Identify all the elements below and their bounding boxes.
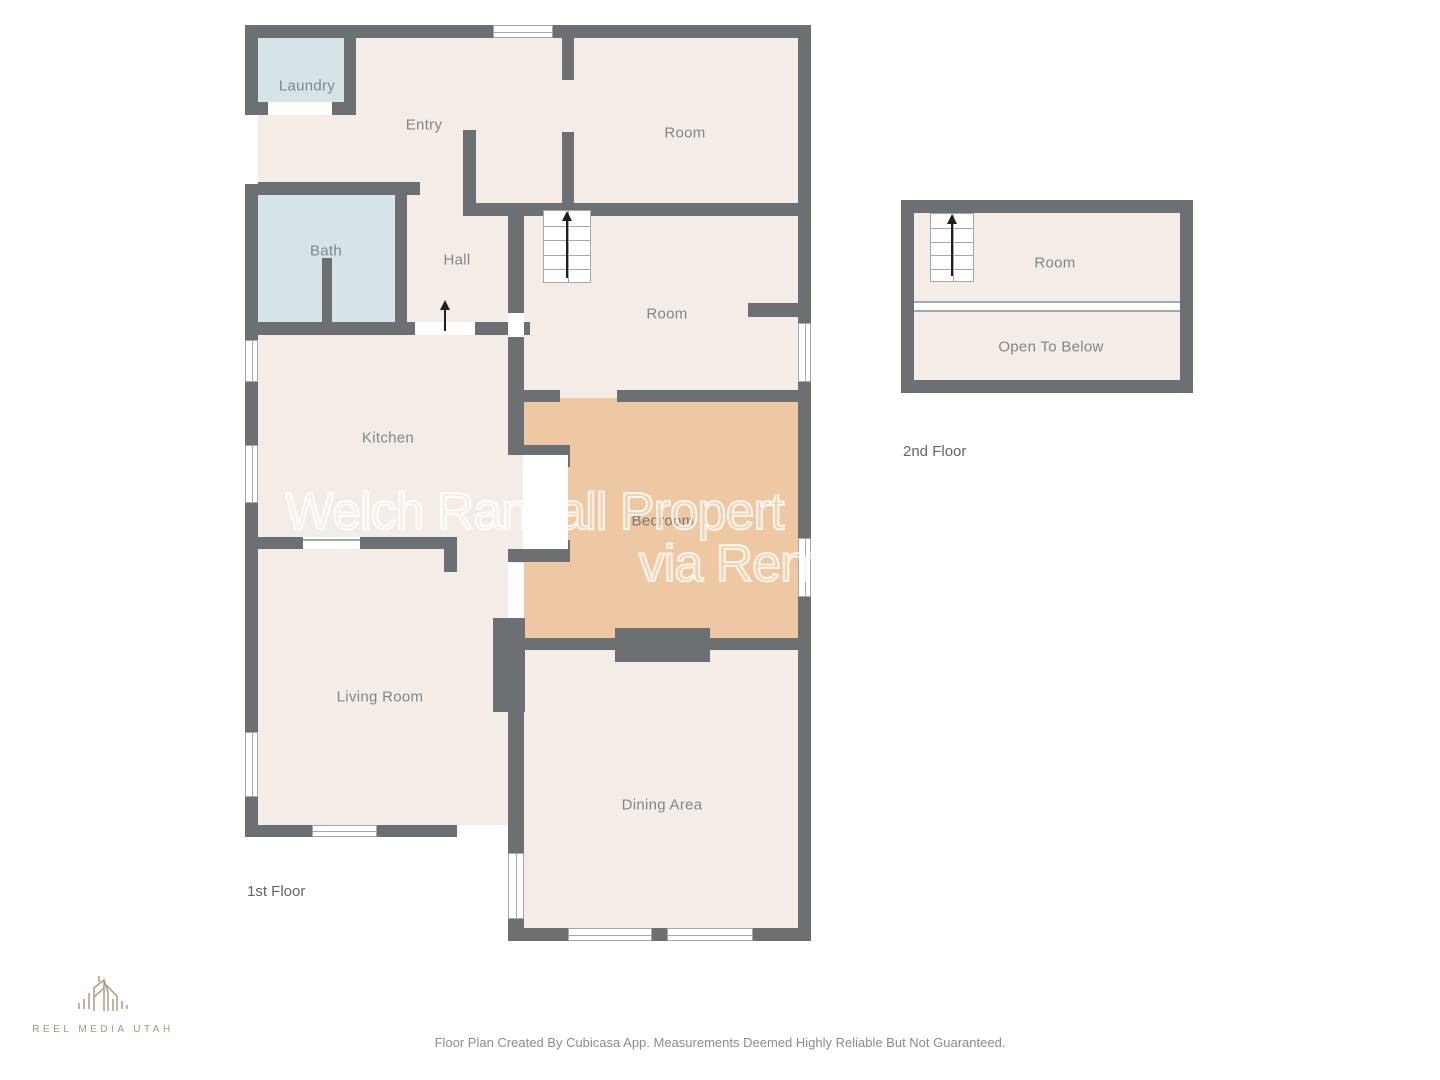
door-opening bbox=[245, 115, 258, 184]
wall-segment bbox=[508, 928, 811, 941]
wall-segment bbox=[508, 712, 524, 853]
wall-segment bbox=[360, 537, 457, 549]
door-opening bbox=[268, 102, 332, 115]
window bbox=[568, 928, 652, 941]
wall-segment bbox=[463, 130, 476, 208]
wall-segment bbox=[508, 390, 560, 402]
window-mullion bbox=[252, 446, 253, 502]
wall-segment bbox=[245, 182, 420, 195]
caption-first-floor: 1st Floor bbox=[247, 883, 305, 900]
wall-segment bbox=[1180, 200, 1193, 393]
wall-segment bbox=[493, 618, 525, 712]
window-mullion bbox=[569, 935, 651, 936]
wall-segment bbox=[615, 628, 710, 662]
window bbox=[312, 825, 377, 837]
wall-segment bbox=[245, 322, 415, 335]
room-label-laundry: Laundry bbox=[279, 78, 335, 95]
wall-segment bbox=[617, 390, 810, 402]
wall-segment bbox=[444, 537, 457, 572]
footer-disclaimer: Floor Plan Created By Cubicasa App. Meas… bbox=[0, 1035, 1440, 1050]
window-mullion bbox=[494, 32, 552, 33]
wall-segment bbox=[901, 200, 914, 393]
logo: REEL MEDIA UTAH bbox=[28, 975, 178, 1035]
wall-segment bbox=[562, 25, 574, 80]
up-arrow-shaft bbox=[444, 309, 446, 331]
wall-segment bbox=[562, 132, 574, 203]
room-label-hall: Hall bbox=[443, 252, 470, 269]
caption-second-floor: 2nd Floor bbox=[903, 443, 966, 460]
window bbox=[245, 732, 258, 797]
door-leaf bbox=[303, 539, 360, 541]
wall-segment bbox=[332, 102, 356, 115]
door-opening bbox=[508, 563, 524, 618]
window bbox=[245, 445, 258, 503]
wall-segment bbox=[508, 216, 524, 313]
room-label-room-2f: Room bbox=[1034, 255, 1075, 272]
room-label-kitchen: Kitchen bbox=[362, 430, 414, 447]
door-opening bbox=[457, 825, 508, 837]
floor-area bbox=[245, 335, 508, 837]
wall-segment bbox=[245, 102, 268, 115]
room-label-living: Living Room bbox=[337, 689, 424, 706]
room-label-bath: Bath bbox=[310, 243, 342, 260]
window-mullion bbox=[252, 341, 253, 381]
wall-segment bbox=[463, 203, 811, 216]
railing bbox=[914, 301, 1180, 312]
window bbox=[245, 340, 258, 382]
logo-text: REEL MEDIA UTAH bbox=[28, 1024, 178, 1035]
window bbox=[493, 25, 553, 38]
room-label-dining: Dining Area bbox=[622, 797, 703, 814]
up-arrow-shaft bbox=[951, 223, 953, 276]
window-mullion bbox=[668, 935, 752, 936]
window-mullion bbox=[805, 324, 806, 381]
wall-segment bbox=[395, 182, 407, 335]
wall-segment bbox=[901, 380, 1193, 393]
window-mullion bbox=[252, 733, 253, 796]
logo-building-icon bbox=[71, 975, 135, 1017]
window-mullion bbox=[516, 854, 517, 918]
wall-segment bbox=[901, 200, 1193, 213]
wall-segment bbox=[245, 537, 303, 549]
wall-segment bbox=[748, 303, 798, 317]
room-label-entry: Entry bbox=[406, 117, 443, 134]
room-label-room-top: Room bbox=[664, 125, 705, 142]
room-label-open-below: Open To Below bbox=[998, 339, 1103, 356]
room-label-bedroom: Bedroom bbox=[632, 513, 695, 530]
window bbox=[508, 853, 524, 919]
up-arrow-shaft bbox=[566, 220, 568, 278]
room-label-room-mid: Room bbox=[646, 306, 687, 323]
door-opening bbox=[508, 313, 524, 337]
door-opening bbox=[523, 455, 568, 549]
wall-segment bbox=[798, 25, 811, 941]
window bbox=[798, 323, 811, 382]
window-mullion bbox=[805, 539, 806, 596]
window bbox=[667, 928, 753, 941]
wall-segment bbox=[322, 258, 332, 322]
window bbox=[798, 538, 811, 597]
window-mullion bbox=[313, 831, 376, 832]
floor-plan-canvas: Laundry Entry Room Bath Hall Room Kitche… bbox=[0, 0, 1440, 1080]
